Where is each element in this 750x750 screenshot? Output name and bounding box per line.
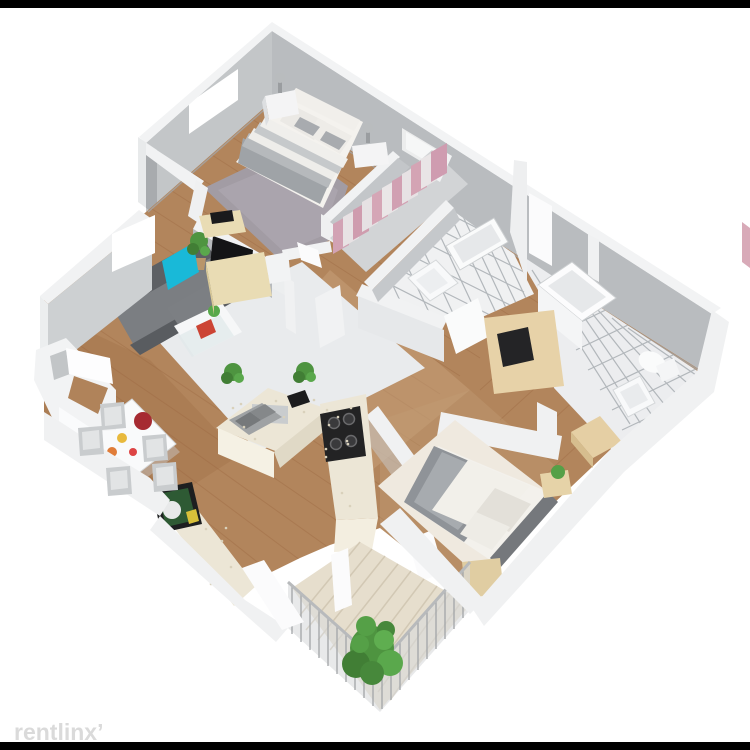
svg-text:rentlinx’: rentlinx’ [14,719,103,745]
